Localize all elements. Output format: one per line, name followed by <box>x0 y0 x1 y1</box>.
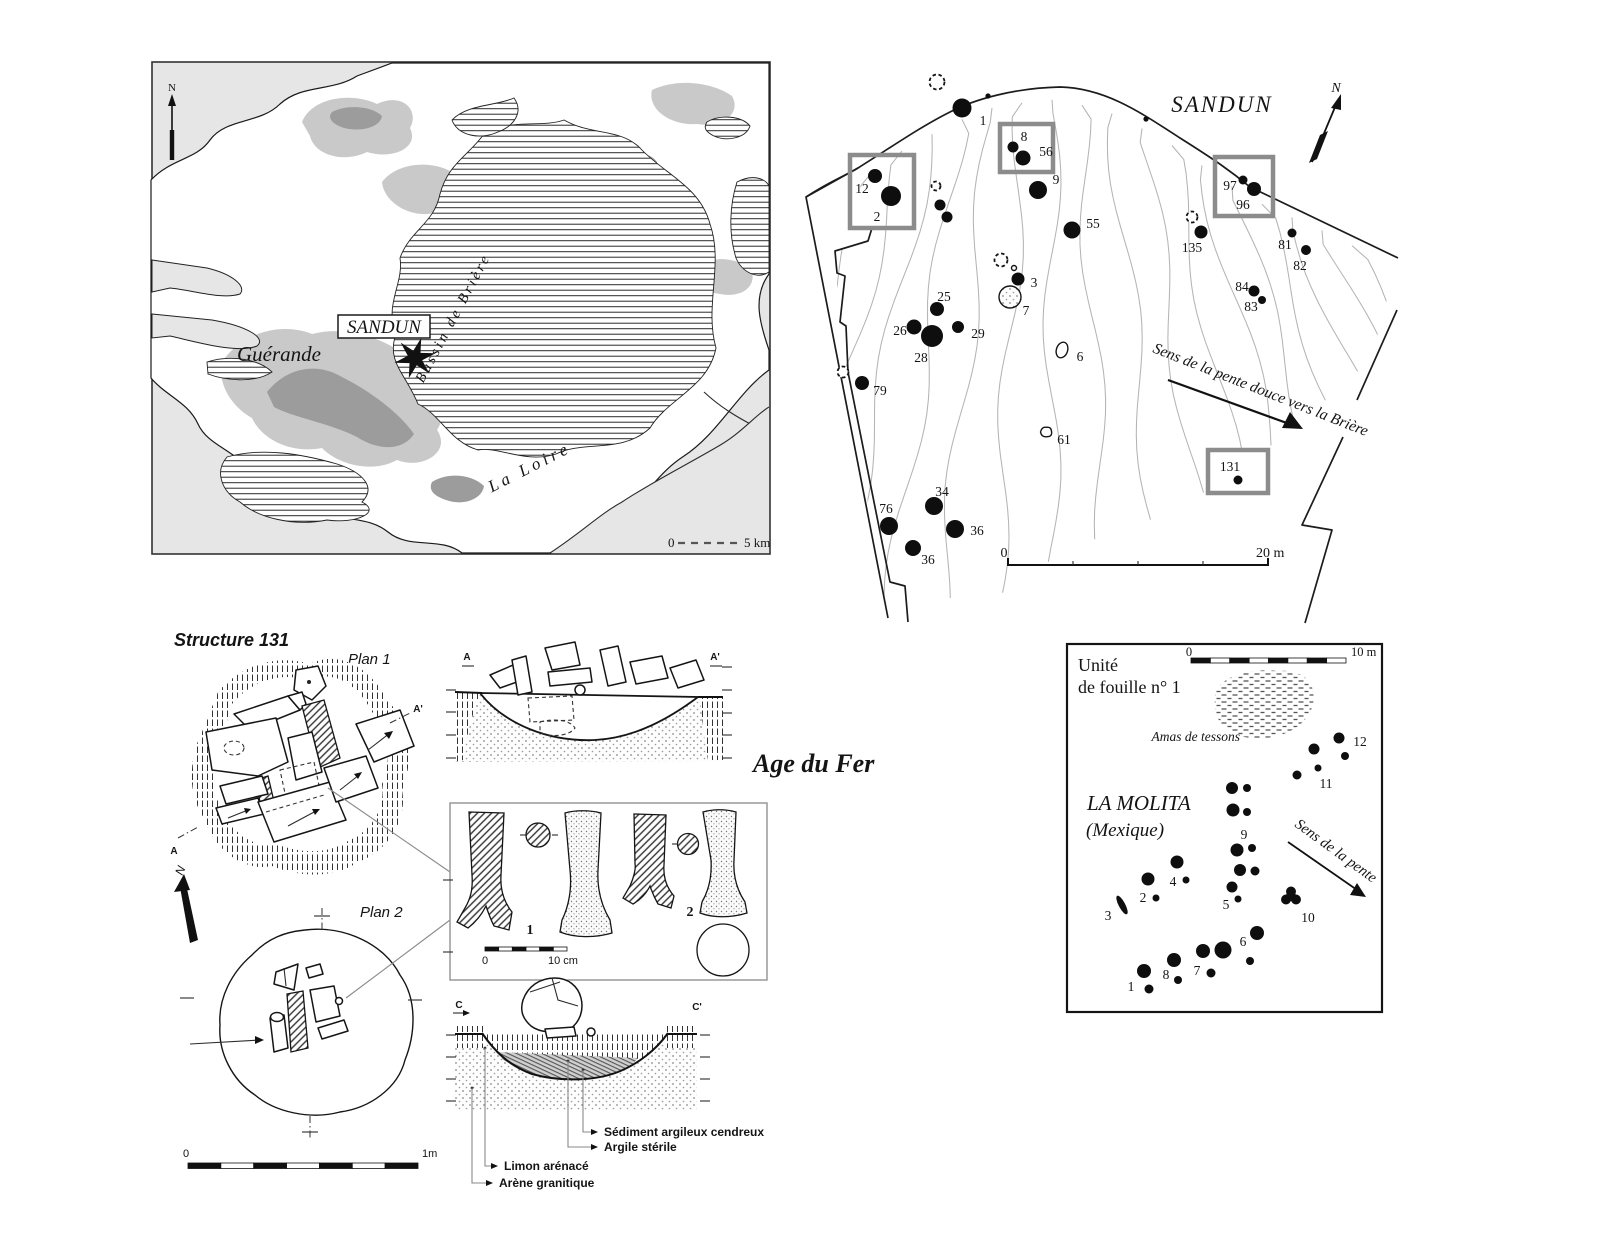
section-a-prime-marker: A' <box>710 652 720 663</box>
structure-131-panel: Structure 131 Plan 1 A A' N <box>160 620 890 1205</box>
plan2-label: Plan 2 <box>360 904 403 921</box>
excavation-boundary-left-inner <box>835 228 908 622</box>
feature-number: 6 <box>1077 349 1084 364</box>
feature-dot <box>946 520 964 538</box>
feature-dot <box>1183 877 1190 884</box>
feature-number: 12 <box>1353 734 1367 749</box>
feature-dot <box>1226 782 1238 794</box>
feature-number: 5 <box>1223 897 1230 912</box>
section-a-drawing: A A' <box>446 642 732 762</box>
boundary-tick-dot <box>985 93 990 98</box>
region-map-panel: SANDUN Guérande Bassin de Brière La Loir… <box>152 62 770 554</box>
scale-end: 10 cm <box>548 955 578 967</box>
feature-dot <box>1207 969 1216 978</box>
legend-item: Sédiment argileux cendreux <box>604 1125 764 1139</box>
scale-bar-segment <box>1269 658 1288 663</box>
scale-bar-segment <box>188 1163 221 1169</box>
feature-dot <box>1174 976 1182 984</box>
pit-outline <box>1041 427 1052 437</box>
feature-dot <box>921 325 943 347</box>
scale-bar-segment <box>221 1163 254 1169</box>
scale-start: 0 <box>183 1148 189 1160</box>
scale-bar-segment <box>512 947 526 951</box>
feature-dot <box>1334 733 1345 744</box>
slope-annotation: Sens de la pente douce vers la Brière <box>1151 340 1371 440</box>
feature-number: 84 <box>1235 279 1249 294</box>
feature-dot <box>881 186 901 206</box>
feature-dot <box>880 517 898 535</box>
feature-dot <box>1167 953 1181 967</box>
site-name-line2: (Mexique) <box>1086 820 1164 841</box>
excavation-boundary-top <box>806 87 1398 258</box>
feature-dot <box>942 212 953 223</box>
scale-bar-segment <box>254 1163 287 1169</box>
feature-dot <box>1248 844 1256 852</box>
section-a-marker: A <box>463 652 470 663</box>
feature-dot <box>868 169 882 183</box>
site-label: SANDUN <box>347 317 422 338</box>
unit-label-line2: de fouille n° 1 <box>1078 677 1181 697</box>
feature-number: 56 <box>1039 144 1053 159</box>
feature-dot <box>1315 765 1322 772</box>
north-arrow: N <box>172 864 198 943</box>
contour-line <box>1140 129 1203 493</box>
feature-dot <box>907 320 922 335</box>
feature-number: 36 <box>921 552 935 567</box>
feature-number: 10 <box>1301 910 1315 925</box>
period-label: Age du Fer <box>751 749 875 778</box>
feature-dot <box>1235 896 1242 903</box>
pit-stippled <box>999 286 1021 308</box>
feature-number: 1 <box>980 113 987 128</box>
scale-bar-segment <box>287 1163 320 1169</box>
feature-number: 76 <box>879 501 893 516</box>
feature-dot <box>1231 844 1244 857</box>
feature-dot <box>1196 944 1210 958</box>
pit-outline-dashed <box>995 254 1008 267</box>
scale-bar-segment <box>1191 658 1210 663</box>
feature-number: 7 <box>1194 963 1201 978</box>
structure-title: Structure 131 <box>174 630 289 650</box>
feature-number: 28 <box>914 350 928 365</box>
feature-dot <box>1286 891 1296 901</box>
pit-outline-dashed <box>838 367 849 378</box>
feature-dot <box>1234 864 1246 876</box>
scale-bar-segment <box>526 947 540 951</box>
feature-number: 6 <box>1240 934 1247 949</box>
scale-end: 5 km <box>744 535 770 550</box>
scale-bar-segment <box>1307 658 1326 663</box>
la-molita-panel: Unité de fouille n° 1 0 10 m Amas de tes… <box>1050 635 1395 1020</box>
contour-line <box>1352 246 1391 316</box>
feature-number: 29 <box>971 326 985 341</box>
figure-canvas: SANDUN Guérande Bassin de Brière La Loir… <box>0 0 1600 1251</box>
scale-bar-segment <box>499 947 513 951</box>
feature-dot <box>1249 286 1260 297</box>
scale-start: 0 <box>1186 645 1192 659</box>
feature-number: 9 <box>1053 172 1060 187</box>
contour-line <box>998 103 1024 593</box>
feature-number: 8 <box>1021 129 1028 144</box>
plan2-drawing <box>180 908 450 1140</box>
legend-item: Arène granitique <box>499 1176 595 1190</box>
feature-dot <box>1137 964 1151 978</box>
scale-bar-segment <box>553 947 567 951</box>
scale-bar-segment <box>385 1163 418 1169</box>
feature-number: 82 <box>1293 258 1307 273</box>
feature-dot <box>1171 856 1184 869</box>
unit-label-line1: Unité <box>1078 655 1118 675</box>
feature-dot <box>953 99 972 118</box>
feature-dot <box>855 376 869 390</box>
scale-bar-segment <box>1249 658 1268 663</box>
feature-dot <box>905 540 921 556</box>
town-label: Guérande <box>237 342 321 366</box>
feature-dot <box>1309 744 1320 755</box>
feature-number: 26 <box>893 323 907 338</box>
artifact-number: 1 <box>527 923 534 938</box>
feature-dot <box>1234 476 1243 485</box>
scale-start: 0 <box>482 955 488 967</box>
feature-number: 34 <box>935 484 949 499</box>
section-a-marker: A <box>170 846 177 857</box>
feature-number: 61 <box>1057 432 1071 447</box>
contour-line <box>1172 146 1245 468</box>
feature-dot <box>1243 808 1251 816</box>
feature-number: 2 <box>1140 890 1147 905</box>
feature-number: 3 <box>1031 275 1038 290</box>
scale-bar-segment <box>1327 658 1346 663</box>
feature-number: 135 <box>1182 240 1203 255</box>
feature-dot <box>1227 882 1238 893</box>
artifact-box: 1 2 0 10 cm <box>443 803 767 980</box>
plan1-drawing: A A' <box>170 659 450 875</box>
north-label: N <box>172 864 188 878</box>
feature-dot <box>1243 784 1251 792</box>
north-label: N <box>1330 81 1341 96</box>
section-a-prime-marker: A' <box>413 704 423 715</box>
scale-start: 0 <box>1001 546 1008 561</box>
pit-outline <box>1054 341 1070 360</box>
pit-outline-dashed <box>932 182 941 191</box>
plan-scale-bar: 0 1m <box>183 1148 437 1169</box>
scale-bar-segment <box>352 1163 385 1169</box>
feature-number: 11 <box>1320 776 1333 791</box>
feature-dot <box>1012 273 1025 286</box>
feature-dot <box>1215 942 1232 959</box>
section-c-drawing: C C' Sédiment argileux cendreux Argile s… <box>446 978 764 1190</box>
feature-number: 131 <box>1220 459 1240 474</box>
feature-dot <box>1029 181 1047 199</box>
feature-dot <box>925 497 943 515</box>
section-c-marker: C <box>455 1000 462 1011</box>
feature-dot <box>1293 771 1302 780</box>
feature-number: 2 <box>874 209 881 224</box>
feature-dot <box>1250 926 1264 940</box>
scale-end: 10 m <box>1351 645 1377 659</box>
feature-dot <box>952 321 964 333</box>
feature-number: 12 <box>855 181 869 196</box>
feature-number: 25 <box>937 289 951 304</box>
feature-number: 7 <box>1023 303 1030 318</box>
scale-bar-segment <box>485 947 499 951</box>
feature-dot <box>1008 142 1019 153</box>
feature-dot <box>1195 226 1208 239</box>
slope-label: Sens de la pente douce vers la Brière <box>1151 340 1371 440</box>
feature-dot <box>1145 985 1154 994</box>
north-arrow: N <box>1309 81 1341 163</box>
plan-title: SANDUN <box>1171 92 1272 117</box>
scale-bar-segment <box>319 1163 352 1169</box>
pit-outline <box>1012 266 1017 271</box>
feature-dot <box>1246 957 1254 965</box>
feature-dot <box>1251 867 1260 876</box>
scale-bar-segment <box>1230 658 1249 663</box>
contour-line <box>1107 114 1150 520</box>
contour-line <box>1292 217 1358 371</box>
feature-dot <box>1247 182 1261 196</box>
feature-number: 1 <box>1128 979 1135 994</box>
feature-dot <box>1301 245 1311 255</box>
feature-dot <box>1153 895 1160 902</box>
feature-number: 8 <box>1163 967 1170 982</box>
feature-number: 55 <box>1086 216 1100 231</box>
feature-dot <box>1064 222 1081 239</box>
feature-dot <box>1142 873 1155 886</box>
feature-number: 96 <box>1236 197 1250 212</box>
site-name-line1: LA MOLITA <box>1086 791 1191 815</box>
feature-dot <box>1341 752 1349 760</box>
feature-dot <box>930 302 944 316</box>
legend-item: Argile stérile <box>604 1140 677 1154</box>
sherds-label: Amas de tessons <box>1151 729 1241 744</box>
legend-item: Limon arénacé <box>504 1159 589 1173</box>
feature-number: 3 <box>1105 908 1112 923</box>
scale-bar-segment <box>1210 658 1229 663</box>
plan-scale-bar: 0 20 m <box>1001 546 1285 565</box>
feature-dot <box>1258 296 1266 304</box>
scale-bar-segment <box>540 947 554 951</box>
contour-line <box>1080 105 1106 539</box>
north-label: N <box>168 82 176 94</box>
feature-number: 83 <box>1244 299 1258 314</box>
feature-number: 4 <box>1170 874 1177 889</box>
pit-outline-dashed <box>1187 212 1198 223</box>
feature-number: 36 <box>970 523 984 538</box>
feature-number: 79 <box>873 383 887 398</box>
pit-outline-dashed <box>930 75 945 90</box>
boundary-tick-dot <box>1143 116 1148 121</box>
feature-number: 81 <box>1278 237 1292 252</box>
feature-dot <box>1016 151 1031 166</box>
feature-dot <box>1227 804 1240 817</box>
feature-number: 97 <box>1223 178 1237 193</box>
feature-dot <box>1239 176 1248 185</box>
scale-bar-segment <box>1288 658 1307 663</box>
sandun-site-plan: 1122856955135979681828483252629283793476… <box>790 55 1410 630</box>
scale-end: 20 m <box>1256 546 1285 561</box>
contour-line <box>792 151 902 613</box>
feature-number: 9 <box>1241 827 1248 842</box>
section-c-prime-marker: C' <box>692 1002 702 1013</box>
feature-dot <box>935 200 946 211</box>
scale-end: 1m <box>422 1148 437 1160</box>
scale-start: 0 <box>668 535 675 550</box>
artifact-number: 2 <box>687 905 694 920</box>
